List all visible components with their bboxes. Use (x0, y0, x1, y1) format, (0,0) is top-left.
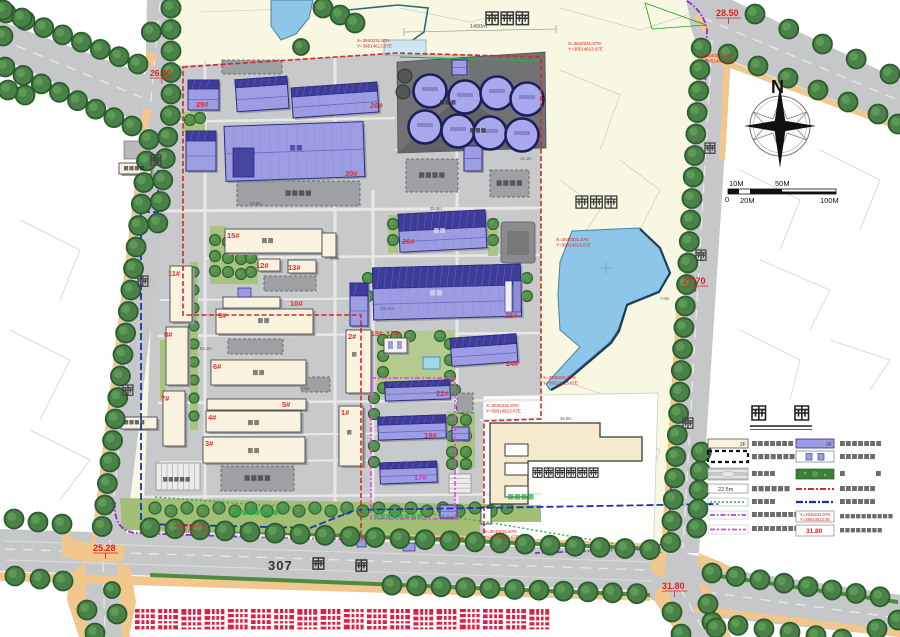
svg-text:18#: 18# (371, 331, 383, 338)
svg-text:2F: 2F (826, 442, 832, 448)
svg-text:72.0m: 72.0m (250, 201, 262, 206)
svg-text:X=3640231.87N: X=3640231.87N (556, 237, 589, 242)
svg-text:Y=39514613.07E: Y=39514613.07E (568, 47, 603, 52)
svg-text:10M: 10M (729, 179, 744, 188)
svg-text:8#: 8# (164, 330, 173, 339)
svg-text:1400m: 1400m (470, 24, 487, 30)
svg-text:0: 0 (725, 195, 729, 204)
svg-text:13#: 13# (288, 263, 301, 272)
svg-text:25.3m: 25.3m (430, 206, 442, 211)
svg-text:X=3640231.87N: X=3640231.87N (486, 403, 519, 408)
svg-text:12.1m: 12.1m (520, 156, 532, 161)
svg-text:26#: 26# (402, 237, 415, 246)
svg-text:Y=39514613.07E: Y=39514613.07E (174, 529, 209, 534)
svg-text:50M: 50M (775, 179, 790, 188)
svg-text:6.0m: 6.0m (300, 386, 310, 391)
svg-text:20M: 20M (740, 196, 755, 205)
svg-text:1#: 1# (341, 408, 350, 417)
svg-text:Y=39514613.07E: Y=39514613.07E (543, 381, 578, 386)
svg-text:307: 307 (268, 558, 293, 573)
svg-text:Y=39514613.0E: Y=39514613.0E (800, 517, 830, 522)
svg-text:9.0m: 9.0m (330, 256, 340, 261)
svg-text:2#: 2# (348, 332, 357, 341)
svg-text:30#: 30# (345, 169, 358, 178)
svg-text:17#: 17# (414, 473, 427, 482)
svg-text:26#: 26# (370, 101, 383, 110)
svg-text:Y=39514613.07E: Y=39514613.07E (484, 535, 519, 540)
svg-text:26.00: 26.00 (150, 68, 172, 78)
svg-text:31.80: 31.80 (662, 581, 685, 591)
svg-text:30.0m: 30.0m (460, 466, 472, 471)
svg-text:36.0m: 36.0m (560, 416, 572, 421)
svg-text:62.1m: 62.1m (200, 346, 212, 351)
svg-text:100M: 100M (820, 196, 839, 205)
svg-text:17#: 17# (386, 329, 399, 338)
svg-text:12#: 12# (256, 261, 269, 270)
svg-text:22.5m: 22.5m (718, 487, 734, 493)
svg-text:6#: 6# (213, 362, 222, 371)
svg-text:X=3640231.87N: X=3640231.87N (700, 53, 733, 58)
svg-text:5#: 5# (282, 400, 291, 409)
svg-text:19#: 19# (424, 431, 437, 440)
svg-text:22#: 22# (436, 389, 449, 398)
svg-text:N: N (771, 77, 784, 97)
svg-text:X=3640231.87N: X=3640231.87N (568, 41, 601, 46)
svg-text:27.70: 27.70 (683, 276, 706, 286)
svg-text:2F: 2F (740, 442, 746, 448)
svg-text:7.0m: 7.0m (660, 296, 670, 301)
svg-text:31.80: 31.80 (806, 528, 823, 535)
svg-text:X=3640231.87N: X=3640231.87N (543, 375, 576, 380)
svg-text:11#: 11# (168, 269, 181, 278)
svg-text:25#: 25# (505, 311, 518, 320)
svg-text:4#: 4# (208, 413, 217, 422)
svg-text:131.6m: 131.6m (380, 306, 394, 311)
svg-text:7#: 7# (161, 394, 170, 403)
svg-text:X=3640231.87N: X=3640231.87N (174, 523, 207, 528)
svg-text:10#: 10# (290, 299, 303, 308)
svg-text:24#: 24# (506, 359, 519, 368)
svg-text:Y=39514613.07E: Y=39514613.07E (486, 409, 521, 414)
svg-text:Y=39514613.07E: Y=39514613.07E (556, 243, 591, 248)
svg-text:Y=39514613.07E: Y=39514613.07E (700, 59, 735, 64)
svg-text:25.28: 25.28 (93, 543, 116, 553)
svg-text:29#: 29# (196, 100, 209, 109)
svg-text:X=3640231.87N: X=3640231.87N (484, 529, 517, 534)
svg-text:28.50: 28.50 (716, 8, 739, 18)
svg-text:15#: 15# (227, 231, 240, 240)
svg-text:X=3640231.87N: X=3640231.87N (357, 38, 390, 43)
svg-text:Y=39514613.07E: Y=39514613.07E (357, 44, 392, 49)
svg-text:3#: 3# (205, 439, 214, 448)
